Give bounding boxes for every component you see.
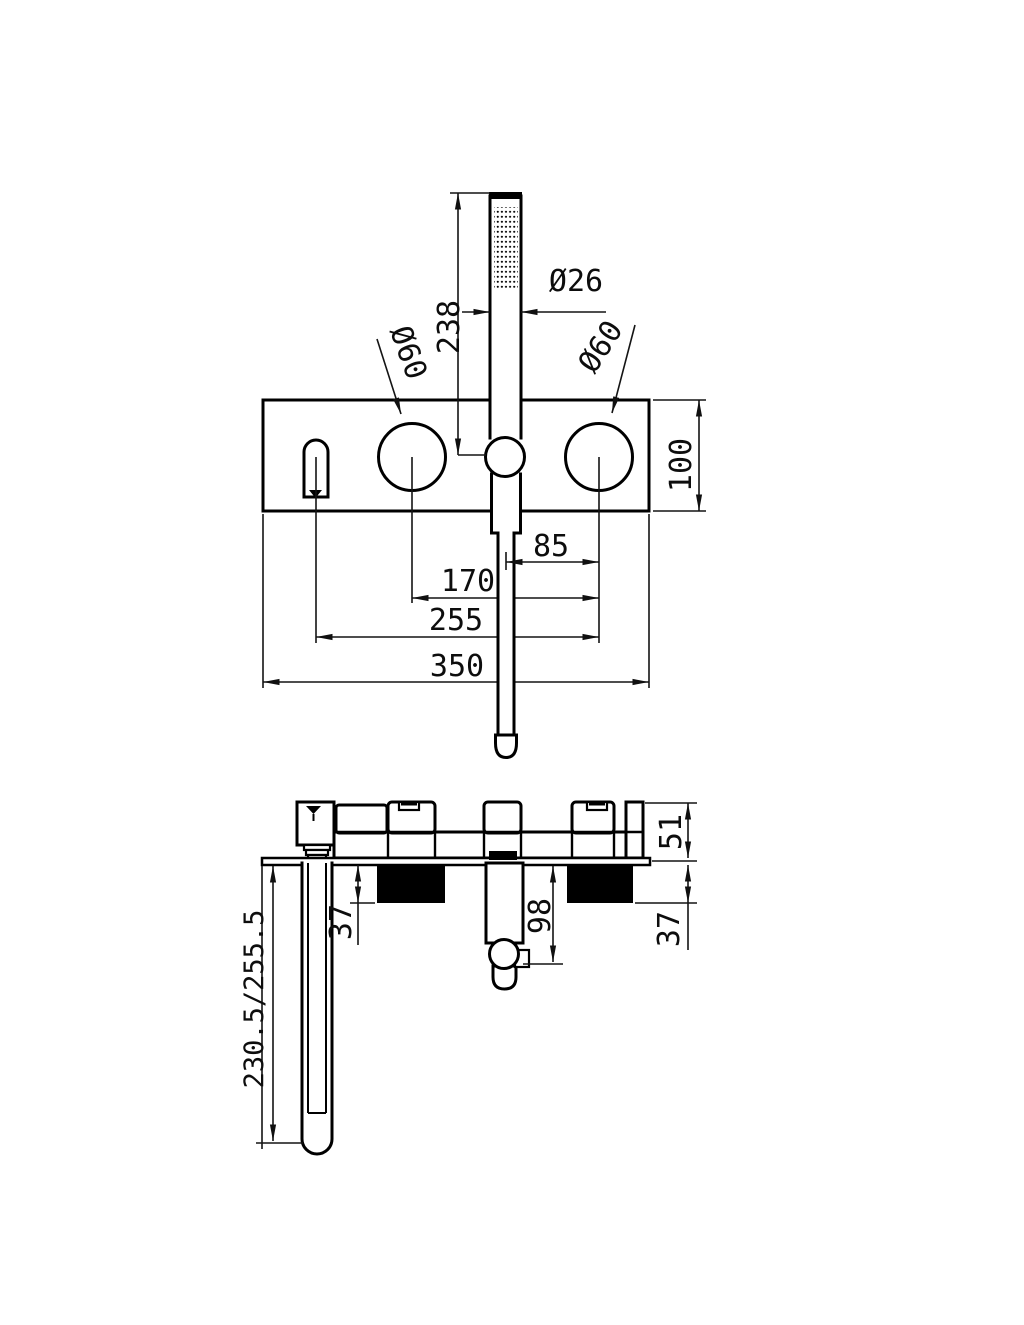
label-51: 51	[654, 814, 689, 850]
label-left-knob-dia: Ø60	[382, 321, 433, 384]
holder-plate-joint	[489, 851, 517, 860]
label-170: 170	[441, 564, 495, 599]
hose-end	[496, 735, 517, 758]
label-238: 238	[432, 300, 467, 354]
label-right-knob-dia: Ø60	[572, 315, 631, 380]
label-85: 85	[533, 529, 569, 564]
label-98: 98	[523, 898, 558, 934]
mixer-technical-drawing: Ø26 238 Ø60 Ø60 100 85 170 255 350	[0, 0, 1024, 1325]
spray-face	[494, 207, 518, 288]
connector-piece	[336, 805, 387, 833]
body-base-bar	[334, 832, 643, 858]
label-spout-length: 230.5/255.5	[239, 910, 270, 1089]
right-rough-in-valve	[567, 865, 633, 903]
shower-holder-front	[486, 438, 525, 477]
holder-body-side	[486, 863, 523, 943]
end-block	[626, 802, 643, 858]
label-37-right: 37	[652, 911, 687, 947]
holder-side-top	[484, 802, 521, 833]
side-view: 51 37 37 98 230.5/255.5	[239, 802, 697, 1154]
front-view: Ø26 238 Ø60 Ø60 100 85 170 255 350	[263, 192, 706, 758]
label-255: 255	[429, 603, 483, 638]
holder-hook-side	[490, 940, 519, 969]
label-hand-shower-dia: Ø26	[549, 264, 603, 299]
hand-shower-cap	[489, 192, 522, 199]
label-37-left: 37	[324, 904, 359, 940]
label-100: 100	[664, 438, 699, 492]
technical-drawing-page: Ø26 238 Ø60 Ø60 100 85 170 255 350	[0, 0, 1024, 1325]
label-350: 350	[430, 649, 484, 684]
left-rough-in-valve	[377, 865, 445, 903]
